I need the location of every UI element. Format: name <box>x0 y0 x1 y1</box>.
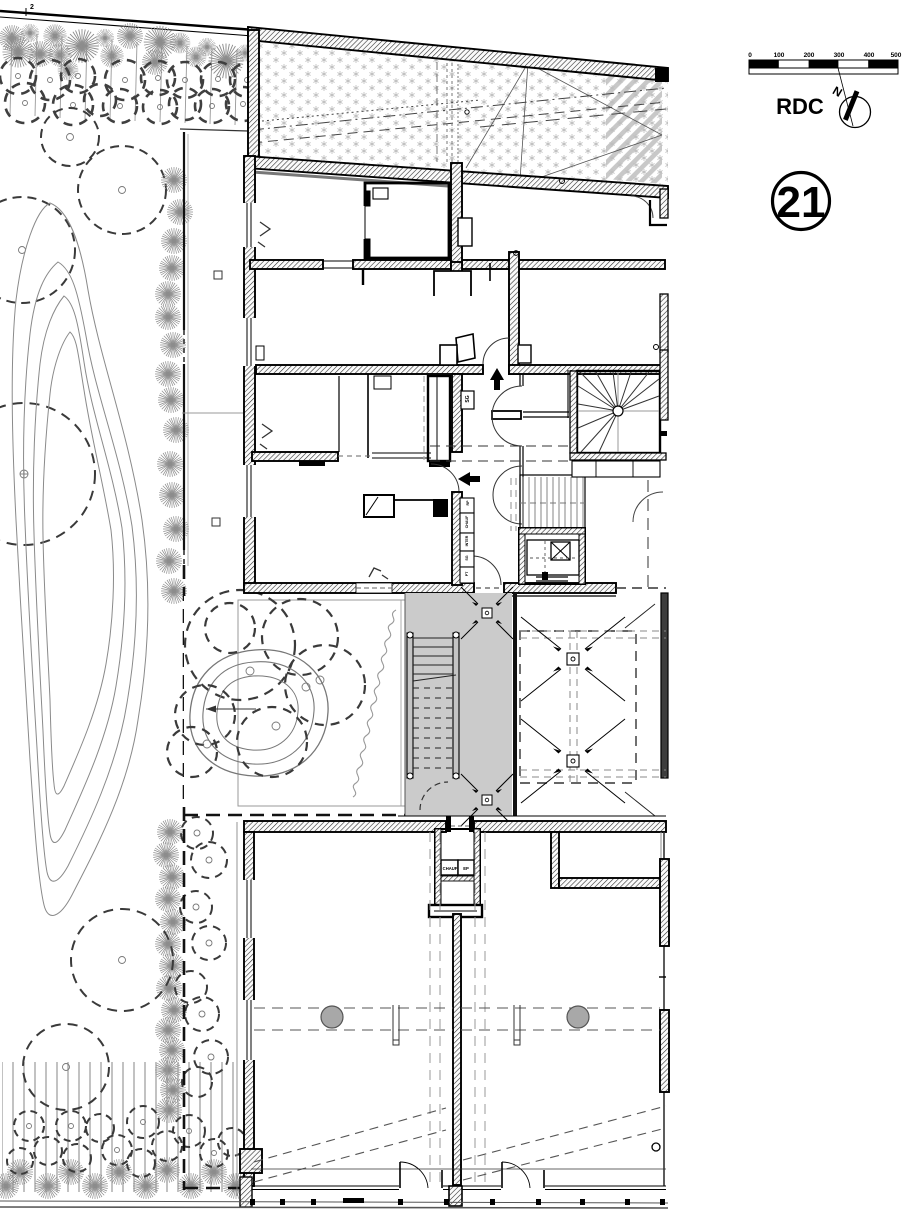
svg-text:CHAUF: CHAUF <box>443 866 458 871</box>
svg-text:RP: RP <box>466 500 470 506</box>
svg-text:0: 0 <box>748 52 752 59</box>
svg-text:2: 2 <box>30 4 34 11</box>
svg-text:400: 400 <box>864 52 875 59</box>
svg-text:SG: SG <box>465 395 471 402</box>
svg-text:SG: SG <box>465 555 469 560</box>
svg-text:INTER: INTER <box>465 535 469 546</box>
svg-text:21: 21 <box>777 178 826 227</box>
svg-text:500: 500 <box>891 52 902 59</box>
svg-text:100: 100 <box>774 52 785 59</box>
svg-text:EP: EP <box>463 866 469 871</box>
svg-text:PT: PT <box>465 571 469 576</box>
svg-text:CHAUF: CHAUF <box>465 515 469 528</box>
svg-text:300: 300 <box>834 52 845 59</box>
svg-text:200: 200 <box>804 52 815 59</box>
svg-text:RDC: RDC <box>776 94 824 119</box>
